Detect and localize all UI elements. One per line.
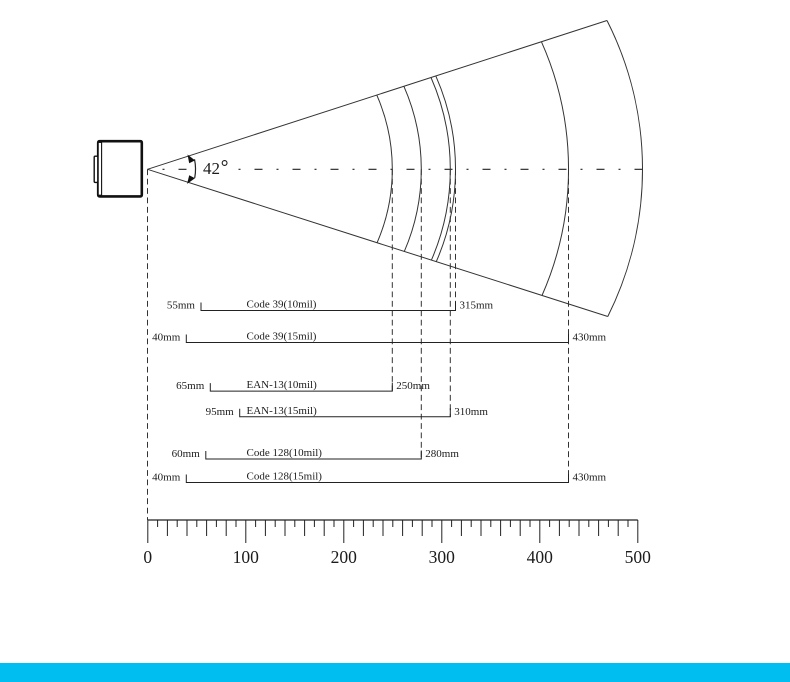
svg-text:100: 100 (233, 547, 260, 567)
svg-text:Code 128(10mil): Code 128(10mil) (247, 447, 323, 459)
svg-text:430mm: 430mm (573, 332, 607, 344)
svg-text:400: 400 (527, 547, 554, 567)
svg-text:Code 39(10mil): Code 39(10mil) (247, 299, 317, 311)
svg-text:40mm: 40mm (152, 472, 181, 484)
svg-text:280mm: 280mm (425, 448, 459, 460)
svg-text:95mm: 95mm (206, 406, 235, 418)
svg-text:40mm: 40mm (152, 332, 181, 344)
svg-text:65mm: 65mm (176, 380, 205, 392)
svg-text:55mm: 55mm (167, 300, 196, 312)
svg-text:310mm: 310mm (454, 406, 488, 418)
svg-text:60mm: 60mm (172, 448, 201, 460)
svg-text:500: 500 (625, 547, 652, 567)
svg-text:430mm: 430mm (573, 472, 607, 484)
svg-text:0: 0 (143, 547, 152, 567)
svg-text:200: 200 (331, 547, 358, 567)
svg-text:EAN-13(15mil): EAN-13(15mil) (247, 405, 318, 417)
svg-text:315mm: 315mm (460, 300, 494, 312)
svg-text:42: 42 (203, 159, 220, 178)
svg-text:Code 39(15mil): Code 39(15mil) (247, 331, 317, 343)
svg-text:EAN-13(10mil): EAN-13(10mil) (247, 379, 318, 391)
svg-text:250mm: 250mm (396, 380, 430, 392)
svg-text:Code 128(15mil): Code 128(15mil) (247, 471, 323, 483)
svg-text:300: 300 (429, 547, 456, 567)
